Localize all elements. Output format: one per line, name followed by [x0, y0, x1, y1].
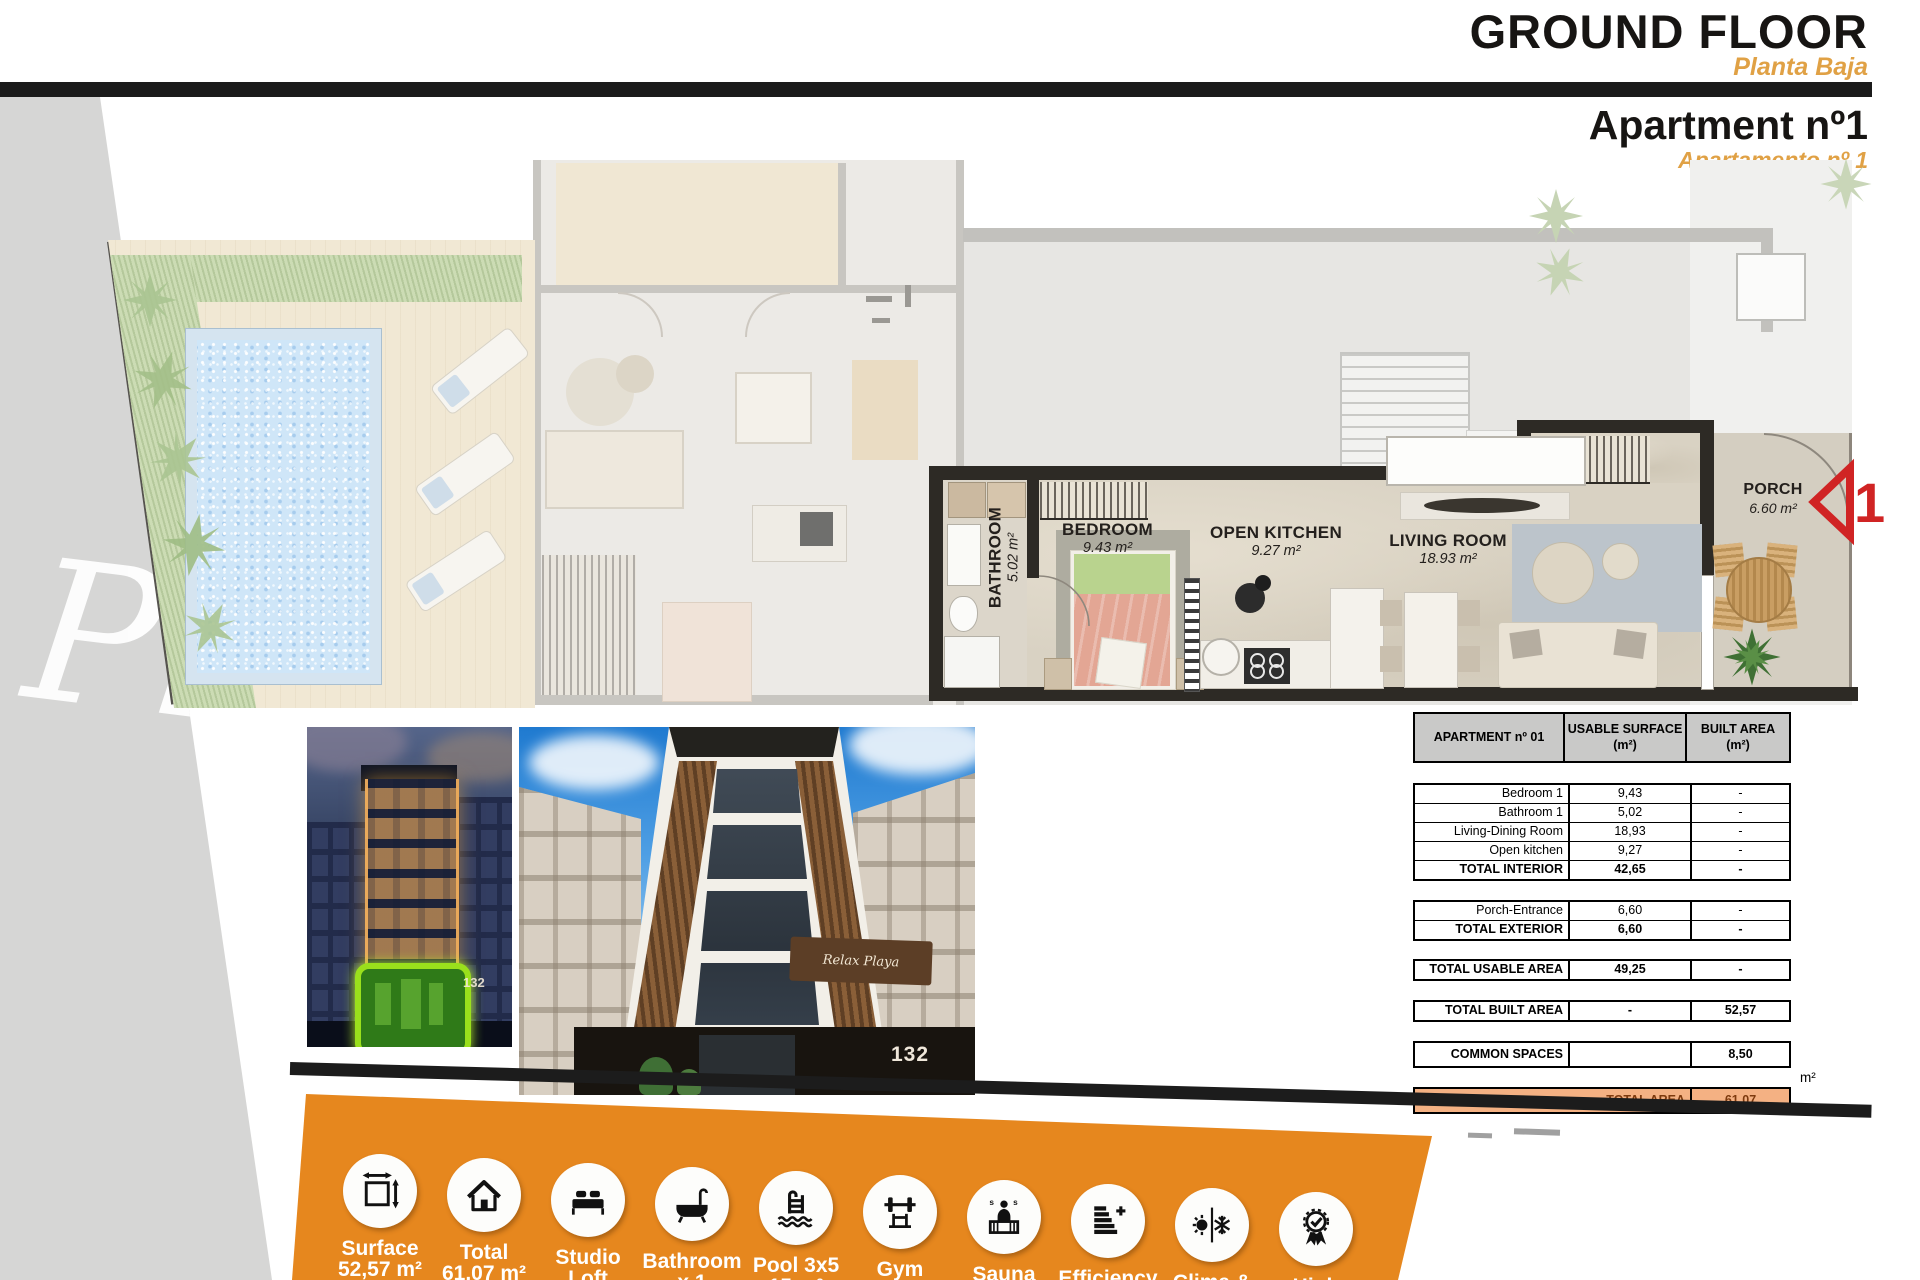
living-room-label: LIVING ROOM 18.93 m²	[1368, 532, 1528, 567]
faded-sofa	[545, 430, 684, 509]
sofa	[1498, 622, 1658, 688]
table-common-group: COMMON SPACES8,50	[1413, 1041, 1791, 1068]
floorplan-sheet: Pl GROUND FLOOR Planta Baja Apartment nº…	[0, 0, 1920, 1280]
table-row: Bedroom 19,43-	[1415, 785, 1789, 803]
dash-mark	[1514, 1128, 1560, 1136]
faded-cooktop	[800, 512, 833, 546]
lounger-pillow	[411, 572, 445, 606]
pouf-large	[1532, 542, 1594, 604]
building-photo-night: 132	[307, 727, 512, 1047]
efficiency-icon	[1071, 1184, 1145, 1258]
highlight-window	[375, 983, 391, 1025]
porch-edge-line	[1849, 433, 1852, 687]
table-exterior-group: Porch-Entrance6,60- TOTAL EXTERIOR6,60-	[1413, 900, 1791, 941]
apartment-title: Apartment nº1	[1589, 102, 1868, 149]
table-header-usable: USABLE SURFACE (m²)	[1565, 714, 1687, 761]
lounger-pillow	[437, 374, 471, 408]
table-row-total-exterior: TOTAL EXTERIOR6,60-	[1415, 920, 1789, 939]
building-sign: Relax Playa	[789, 937, 932, 986]
bedroom-wardrobe	[1040, 482, 1148, 520]
features-row: Surface52,57 m² Total61,07 m²	[328, 1154, 1368, 1280]
table-row: Porch-Entrance6,60-	[1415, 902, 1789, 920]
table-built-group: TOTAL BUILT AREA-52,57	[1413, 1000, 1791, 1022]
pool-garden	[100, 238, 535, 708]
open-kitchen-label: OPEN KITCHEN 9.27 m²	[1192, 524, 1360, 559]
fridge	[1202, 638, 1240, 676]
dash-mark	[1468, 1133, 1492, 1139]
sun-lounger	[430, 326, 531, 416]
feature-studio: StudioLoft	[536, 1163, 640, 1280]
feature-bathroom: Bathroomx 1	[640, 1167, 744, 1280]
faded-wall	[963, 228, 1773, 242]
bathroom-sink	[947, 524, 981, 586]
features-bar: Surface52,57 m² Total61,07 m²	[292, 1090, 1438, 1280]
feature-surface: Surface52,57 m²	[328, 1154, 432, 1280]
feature-efficiency: EfficiencyA+	[1056, 1184, 1160, 1280]
gym-icon	[863, 1175, 937, 1249]
wall-porch-top	[1517, 420, 1714, 433]
pool-ladder-icon	[759, 1171, 833, 1245]
dining-table	[1404, 592, 1458, 688]
loft-ladder	[1184, 578, 1200, 692]
building-photo-day: Relax Playa 132	[519, 727, 975, 1095]
faded-gym-equipment	[872, 318, 890, 323]
area-table: APARTMENT nº 01 USABLE SURFACE (m²) BUIL…	[1413, 712, 1791, 1114]
faded-gym-equipment	[905, 285, 911, 307]
feature-climate: Clima &Heating	[1160, 1188, 1264, 1280]
unit-number-marker: 1	[1854, 470, 1885, 535]
total-area-unit: m²	[1800, 1070, 1816, 1085]
house-icon	[447, 1158, 521, 1232]
dimensions-icon	[343, 1154, 417, 1228]
table-usable-group: TOTAL USABLE AREA49,25-	[1413, 959, 1791, 981]
cooktop	[1244, 648, 1290, 684]
table-row-total-usable: TOTAL USABLE AREA49,25-	[1415, 961, 1789, 979]
sofa-pillow	[1613, 629, 1646, 659]
sun-lounger	[414, 431, 517, 518]
toilet	[949, 596, 978, 632]
climate-icon	[1175, 1188, 1249, 1262]
dining-chair	[1380, 600, 1402, 626]
shower	[944, 636, 1000, 688]
chair-dark-back	[1255, 575, 1271, 591]
faded-wardrobe	[542, 555, 636, 695]
sofa-pillow	[1509, 629, 1542, 659]
feature-total: Total61,07 m²	[432, 1158, 536, 1280]
dining-chair	[1458, 646, 1480, 672]
table-header-apartment: APARTMENT nº 01	[1415, 714, 1565, 761]
faded-dining-table	[735, 372, 812, 444]
feature-gym: Gym10 m²	[848, 1175, 952, 1280]
ground-floor-highlight	[355, 963, 471, 1047]
feature-pool: Pool 3x515 m²	[744, 1171, 848, 1280]
area-table-header: APARTMENT nº 01 USABLE SURFACE (m²) BUIL…	[1413, 712, 1791, 763]
lounger-pillow	[421, 475, 455, 509]
bathtub-icon	[655, 1167, 729, 1241]
wall-left	[929, 466, 943, 701]
highlight-window	[401, 979, 421, 1029]
burner	[1250, 664, 1265, 679]
header-divider-bar	[0, 82, 1872, 97]
house-number: 132	[463, 975, 485, 990]
table-row: Bathroom 15,02-	[1415, 803, 1789, 822]
faded-rug-small	[616, 355, 654, 393]
kitchen-island	[1330, 588, 1384, 689]
faded-wall	[838, 163, 846, 293]
table-row-total-built: TOTAL BUILT AREA-52,57	[1415, 1002, 1789, 1020]
tv-console	[1424, 498, 1540, 513]
page-title: GROUND FLOOR	[1470, 4, 1868, 59]
sun-lounger	[404, 529, 507, 614]
tv-wall-unit	[1386, 436, 1586, 486]
table-row-common-spaces: COMMON SPACES8,50	[1415, 1043, 1789, 1066]
pool-water	[197, 340, 370, 673]
faded-window-box	[1736, 253, 1806, 321]
faded-gym-equipment	[866, 296, 892, 302]
porch-label: PORCH 6.60 m²	[1712, 482, 1834, 515]
faded-deck	[852, 360, 918, 460]
swimming-pool	[185, 328, 382, 685]
table-row: Open kitchen9,27-	[1415, 841, 1789, 860]
house-number: 132	[891, 1043, 929, 1067]
highlight-window	[429, 983, 443, 1025]
bed-pillow-green	[1074, 554, 1170, 594]
table-row-total-interior: TOTAL INTERIOR42,65-	[1415, 860, 1789, 879]
faded-bed	[662, 602, 752, 702]
feature-sauna: s s Sauna6 pers	[952, 1180, 1056, 1280]
bathroom-label: BATHROOM 5.02 m²	[986, 498, 1021, 618]
dining-chair	[1380, 646, 1402, 672]
bedroom-label: BEDROOM 9.43 m²	[1035, 521, 1180, 556]
burner	[1269, 664, 1284, 679]
award-icon	[1279, 1192, 1353, 1266]
bath-cabinet	[948, 482, 986, 518]
sauna-icon: s s	[967, 1180, 1041, 1254]
dining-chair	[1458, 600, 1480, 626]
sliding-door	[1701, 575, 1714, 690]
page-subtitle: Planta Baja	[1733, 53, 1868, 82]
pouf-small	[1602, 543, 1639, 580]
nightstand	[1044, 658, 1072, 690]
bed-icon	[551, 1163, 625, 1237]
table-interior-group: Bedroom 19,43- Bathroom 15,02- Living-Di…	[1413, 783, 1791, 881]
faded-wood-room	[556, 163, 840, 289]
faded-wall	[533, 285, 963, 293]
svg-text:s: s	[989, 1198, 994, 1207]
bed-throw	[1095, 637, 1147, 689]
feature-quality: Highquality	[1264, 1192, 1368, 1280]
porch-table	[1726, 557, 1792, 623]
table-header-built: BUILT AREA (m²)	[1687, 714, 1789, 761]
svg-text:s: s	[1013, 1198, 1018, 1207]
table-row: Living-Dining Room18,93-	[1415, 822, 1789, 841]
